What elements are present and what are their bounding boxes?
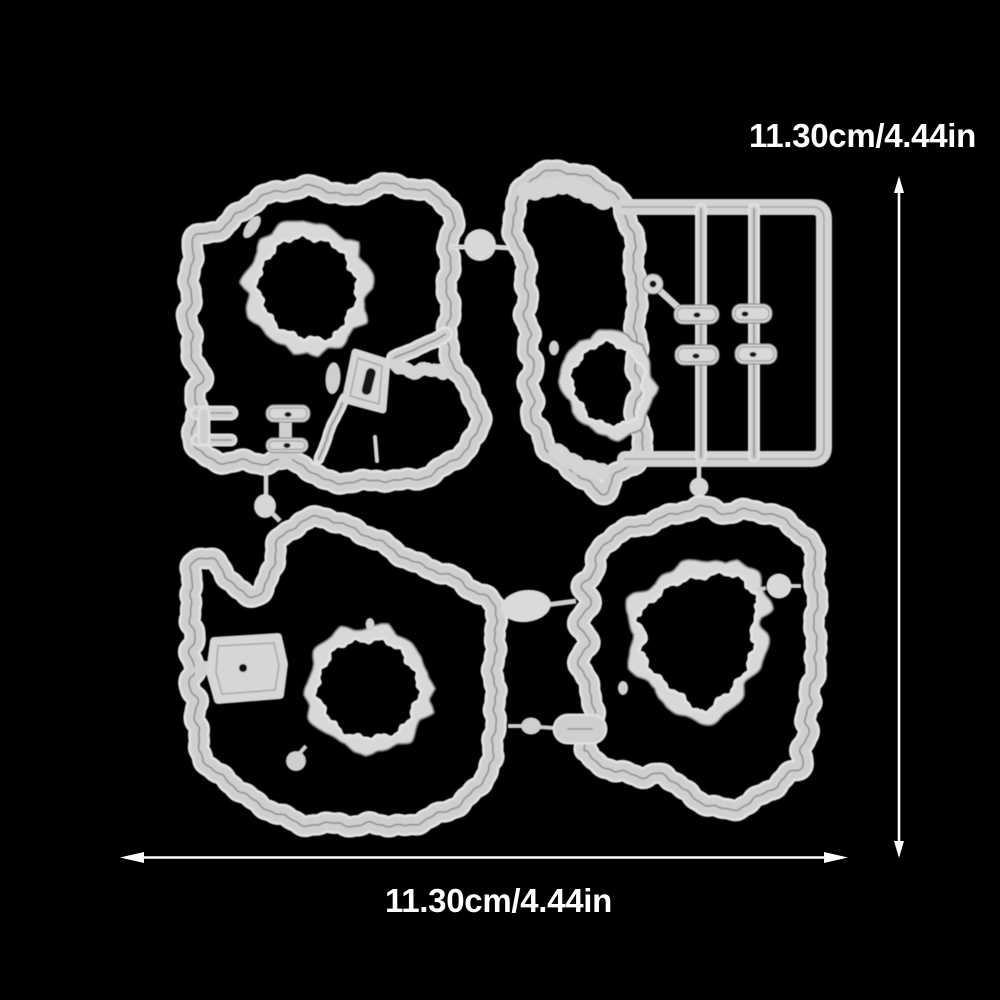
- svg-text:11.30cm/4.44in: 11.30cm/4.44in: [385, 882, 612, 919]
- svg-text:11.30cm/4.44in: 11.30cm/4.44in: [749, 117, 976, 154]
